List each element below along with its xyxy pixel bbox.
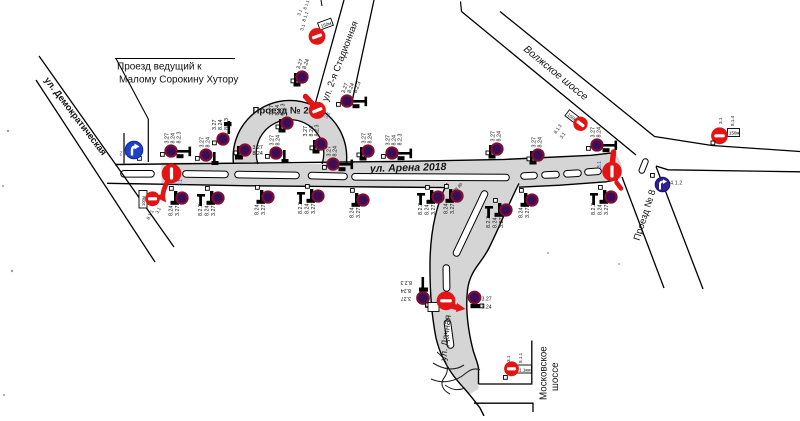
svg-text:8.24: 8.24 — [538, 137, 544, 148]
svg-text:3.1: 3.1 — [178, 179, 184, 186]
svg-text:8.24: 8.24 — [305, 204, 311, 215]
svg-text:3.27: 3.27 — [211, 206, 217, 217]
svg-text:8.24: 8.24 — [206, 137, 212, 148]
svg-text:8.2.3: 8.2.3 — [281, 104, 287, 116]
svg-text:8.24: 8.24 — [519, 208, 525, 219]
svg-text:8.24: 8.24 — [444, 204, 450, 215]
svg-text:3.27: 3.27 — [253, 145, 263, 151]
svg-text:8.2.3: 8.2.3 — [315, 125, 321, 137]
svg-text:8.24: 8.24 — [169, 206, 175, 217]
svg-text:ул. Арена 2018: ул. Арена 2018 — [369, 161, 447, 175]
svg-text:3.27: 3.27 — [261, 205, 267, 216]
svg-text:8.24: 8.24 — [497, 131, 503, 142]
svg-text:8.2.3: 8.2.3 — [591, 203, 597, 215]
svg-text:1.1км: 1.1км — [519, 368, 531, 373]
svg-text:Проезд ведущий к: Проезд ведущий к — [117, 62, 202, 73]
svg-text:8.2.3: 8.2.3 — [398, 134, 404, 146]
svg-text:8.2.3: 8.2.3 — [177, 132, 183, 144]
svg-text:3.27: 3.27 — [604, 205, 610, 216]
svg-text:8.1.4: 8.1.4 — [730, 115, 735, 126]
svg-text:3.1: 3.1 — [506, 355, 511, 362]
svg-text:8.24: 8.24 — [253, 151, 263, 157]
svg-text:8.24: 8.24 — [493, 218, 499, 229]
svg-text:3.1: 3.1 — [718, 117, 723, 124]
svg-text:8.24: 8.24 — [255, 205, 261, 216]
svg-text:150м: 150м — [729, 131, 739, 136]
svg-text:8.24: 8.24 — [368, 133, 374, 144]
svg-text:3.27: 3.27 — [356, 208, 362, 219]
svg-text:3.1: 3.1 — [597, 161, 603, 168]
svg-text:8.2.3: 8.2.3 — [486, 216, 492, 228]
svg-text:8.24: 8.24 — [425, 205, 431, 216]
svg-text:3.27: 3.27 — [525, 208, 531, 219]
svg-text:8.24: 8.24 — [482, 305, 492, 311]
svg-text:8.2.3: 8.2.3 — [298, 202, 304, 214]
svg-text:8.2.3: 8.2.3 — [400, 279, 412, 285]
svg-text:4.1.2: 4.1.2 — [670, 181, 682, 187]
svg-text:8.2.3: 8.2.3 — [224, 118, 230, 130]
svg-text:8.24: 8.24 — [598, 205, 604, 216]
svg-text:3.27: 3.27 — [431, 205, 437, 216]
svg-text:3.27: 3.27 — [499, 218, 505, 229]
svg-text:4.1.2: 4.1.2 — [119, 150, 131, 156]
svg-text:шоссе: шоссе — [550, 362, 561, 391]
svg-text:3.27: 3.27 — [175, 206, 181, 217]
svg-text:3.27: 3.27 — [482, 297, 492, 303]
svg-text:3.27: 3.27 — [401, 295, 411, 301]
svg-text:8.24: 8.24 — [333, 146, 339, 157]
svg-text:8.2.3: 8.2.3 — [198, 204, 204, 216]
svg-text:8.1.1: 8.1.1 — [518, 352, 523, 363]
svg-text:Малому Сорокину Хутору: Малому Сорокину Хутору — [119, 75, 238, 86]
svg-text:3.27: 3.27 — [450, 204, 456, 215]
svg-text:8.24: 8.24 — [350, 208, 356, 219]
svg-text:8.24: 8.24 — [276, 135, 282, 146]
svg-text:8.2.3: 8.2.3 — [418, 203, 424, 215]
svg-text:8.24: 8.24 — [205, 206, 211, 217]
svg-text:3.27: 3.27 — [311, 204, 317, 215]
svg-text:Московское: Московское — [539, 346, 550, 400]
svg-text:8.24: 8.24 — [401, 287, 411, 293]
svg-text:8.24: 8.24 — [597, 127, 603, 138]
